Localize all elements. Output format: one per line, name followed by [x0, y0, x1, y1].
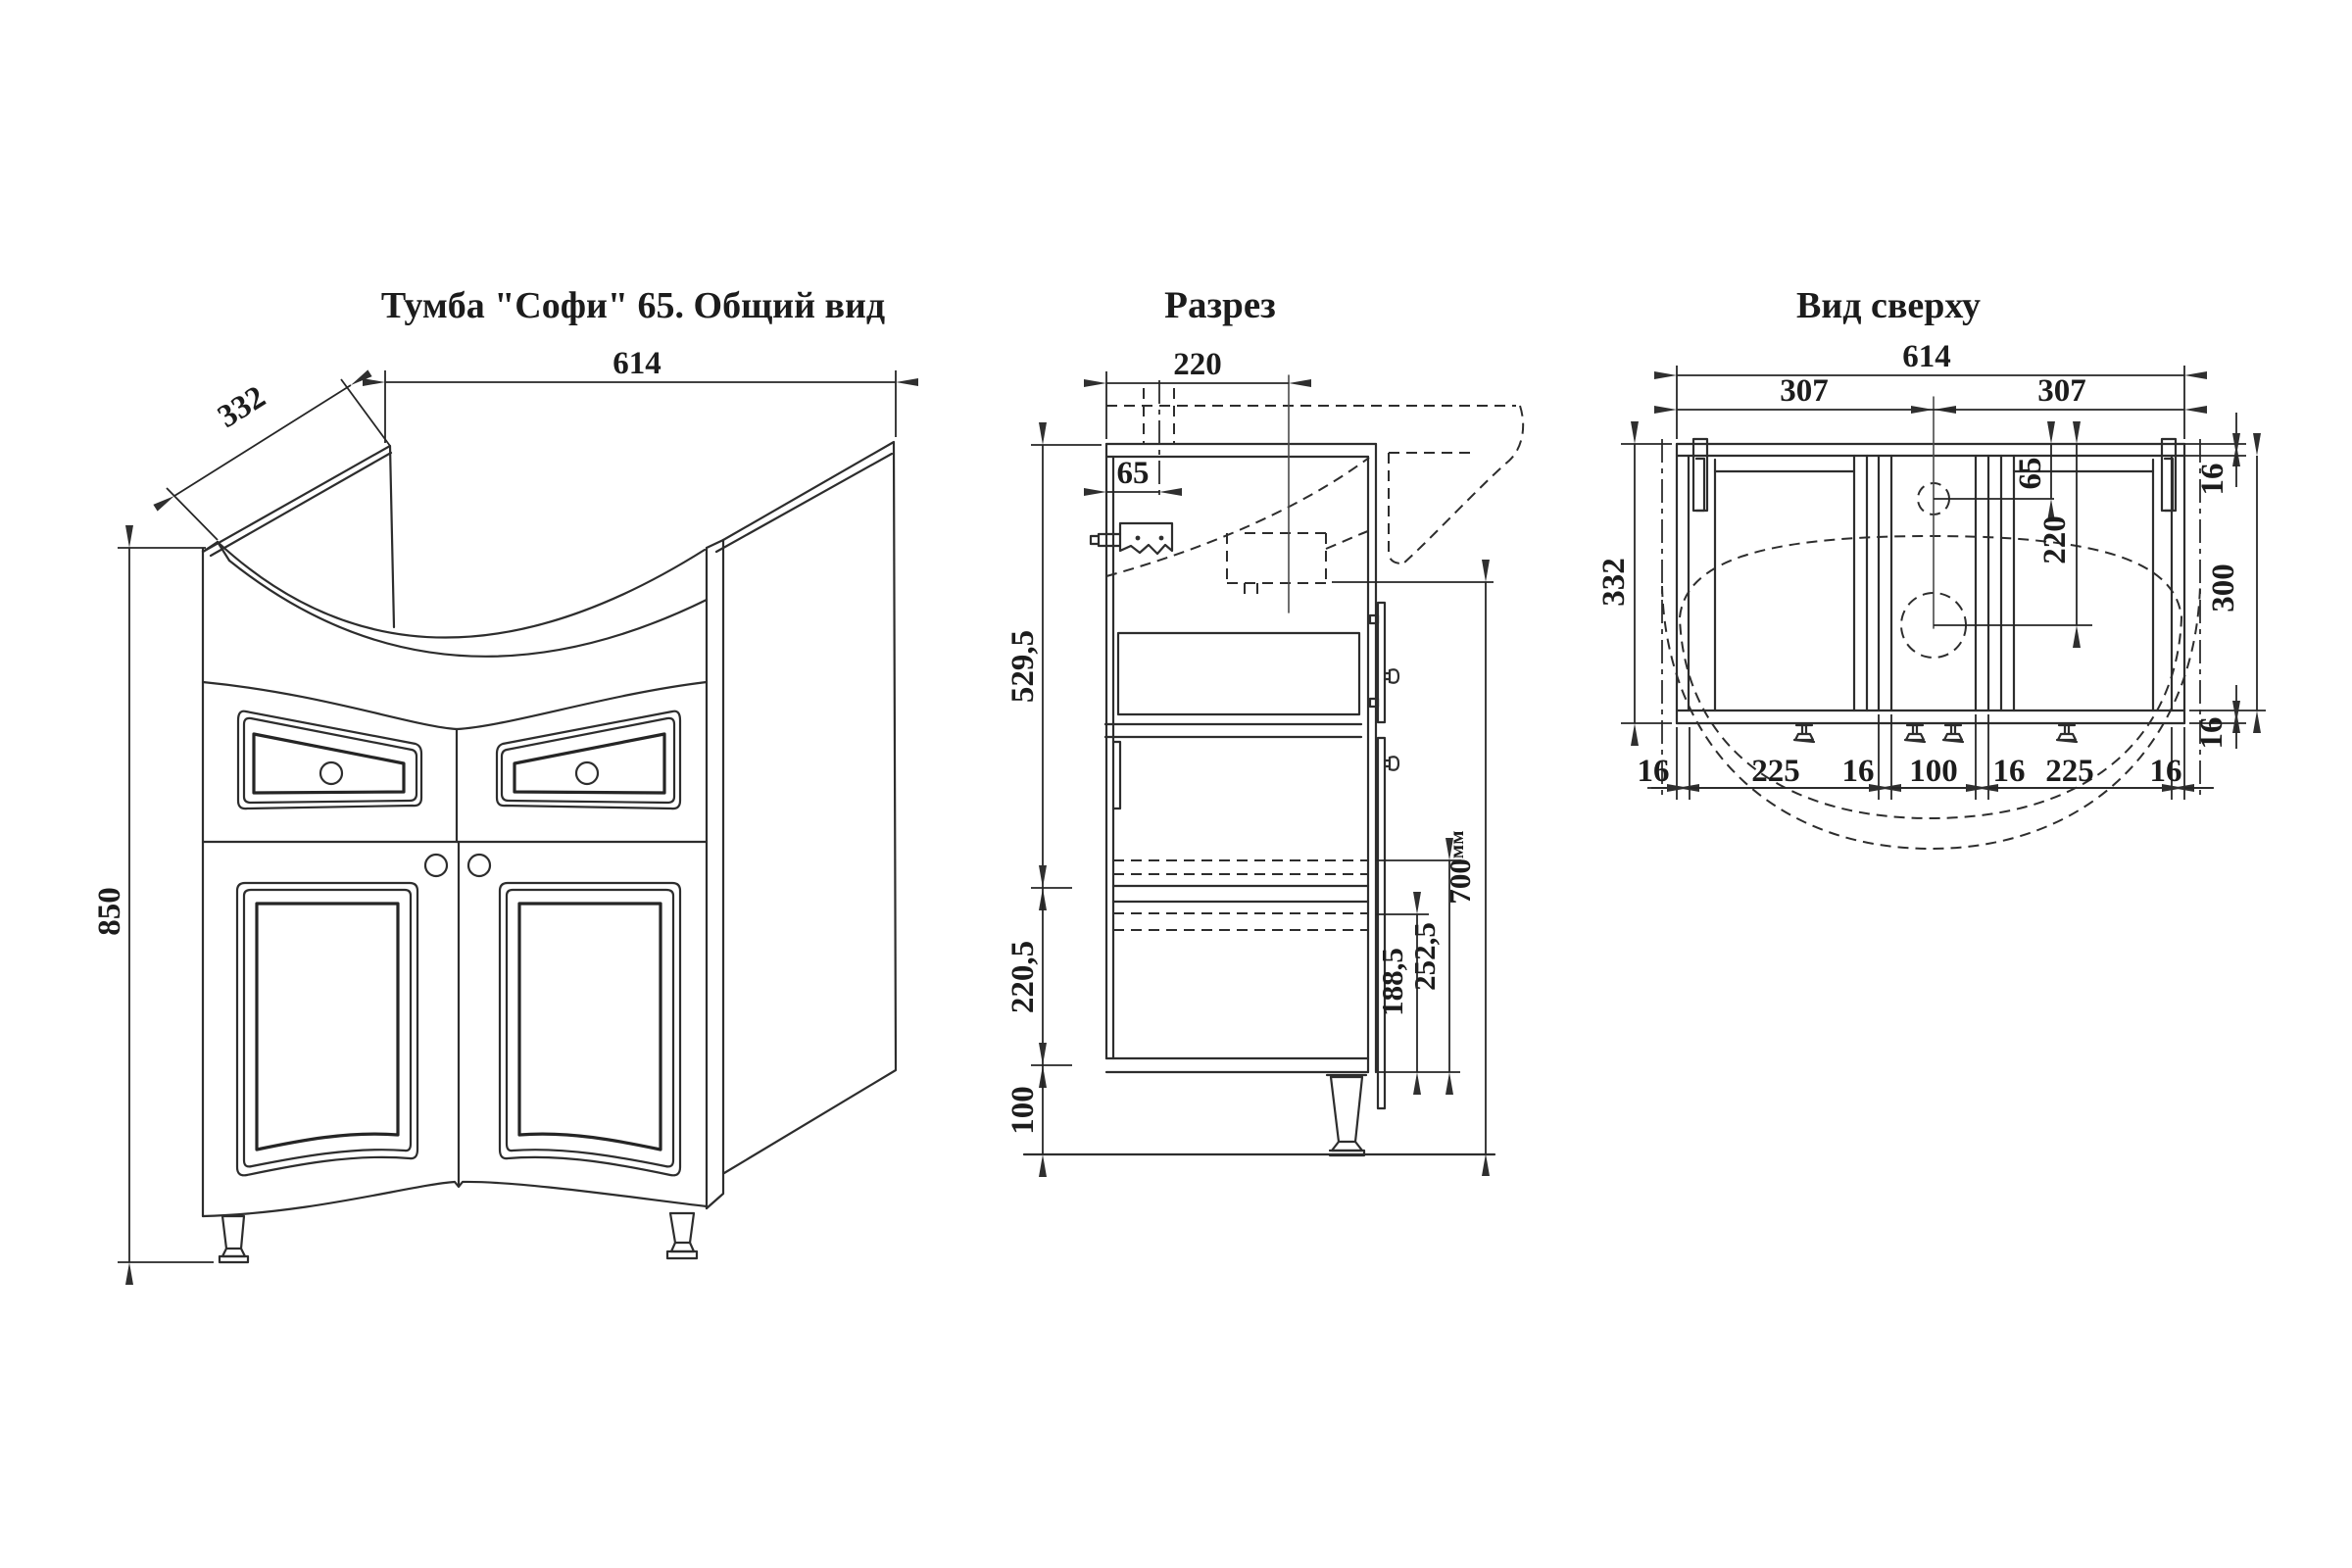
svg-text:100: 100: [1909, 754, 1958, 789]
svg-text:614: 614: [612, 346, 661, 381]
svg-text:220: 220: [2037, 515, 2073, 564]
svg-text:307: 307: [1780, 373, 1829, 409]
svg-text:Тумба "Софи" 65. Общий вид: Тумба "Софи" 65. Общий вид: [381, 285, 885, 326]
svg-text:220,5: 220,5: [1005, 941, 1041, 1013]
svg-text:16: 16: [1638, 754, 1670, 789]
svg-text:16: 16: [2194, 717, 2229, 750]
svg-text:332: 332: [1596, 558, 1632, 607]
svg-text:16: 16: [1993, 754, 2026, 789]
svg-text:225: 225: [1751, 754, 1800, 789]
svg-text:188,5: 188,5: [1375, 948, 1409, 1016]
svg-text:Разрез: Разрез: [1164, 284, 1276, 326]
svg-text:65: 65: [2013, 458, 2048, 490]
svg-text:614: 614: [1902, 339, 1951, 374]
svg-text:Вид сверху: Вид сверху: [1796, 285, 1981, 326]
svg-text:850: 850: [92, 887, 127, 936]
svg-text:300: 300: [2206, 563, 2241, 612]
svg-text:16: 16: [2195, 464, 2230, 496]
svg-text:252,5: 252,5: [1407, 922, 1442, 991]
svg-text:307: 307: [2037, 373, 2086, 409]
svg-text:225: 225: [2045, 754, 2094, 789]
svg-text:220: 220: [1173, 347, 1222, 382]
svg-text:16: 16: [2150, 754, 2182, 789]
svg-text:100: 100: [1005, 1086, 1041, 1135]
svg-text:65: 65: [1117, 456, 1150, 491]
svg-text:529,5: 529,5: [1005, 630, 1041, 703]
svg-text:16: 16: [1842, 754, 1875, 789]
